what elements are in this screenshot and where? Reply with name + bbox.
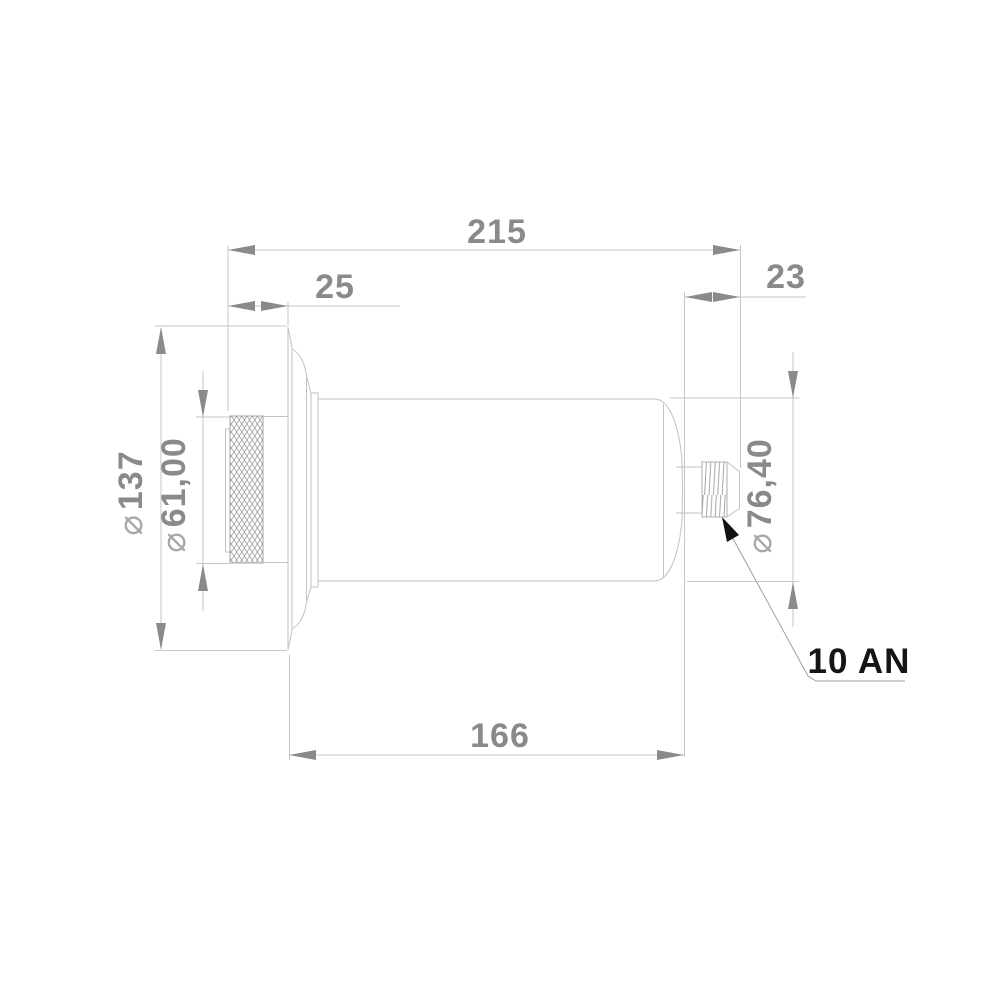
diameter-symbol: ⌀ bbox=[112, 514, 150, 535]
shoulder-bottom bbox=[292, 587, 311, 629]
dim-overall-length-label: 215 bbox=[467, 213, 527, 251]
arrowhead bbox=[156, 327, 166, 354]
arrowhead bbox=[198, 564, 208, 591]
leader-arrowhead bbox=[722, 517, 739, 542]
flange bbox=[288, 327, 311, 650]
cap-rim bbox=[226, 429, 231, 552]
fitting-threads bbox=[702, 462, 727, 517]
dimension-cap-diameter: ⌀61,00 bbox=[155, 371, 229, 611]
dim-flange-diameter-label: ⌀137 bbox=[112, 450, 150, 535]
shoulder-top bbox=[292, 349, 311, 393]
technical-drawing: 215 25 23 166 ⌀137 ⌀ bbox=[0, 0, 1000, 1000]
diameter-symbol: ⌀ bbox=[155, 531, 193, 552]
fitting-callout-label: 10 AN bbox=[808, 642, 911, 681]
dim-fitting-protrusion-label: 23 bbox=[766, 258, 806, 296]
arrowhead bbox=[228, 245, 255, 255]
dimension-cap-protrusion: 25 bbox=[228, 268, 400, 325]
dim-body-diameter-label: ⌀76,40 bbox=[741, 438, 779, 554]
arrowhead bbox=[261, 301, 288, 311]
arrowhead bbox=[788, 582, 798, 609]
technical-drawing-canvas: 215 25 23 166 ⌀137 ⌀ bbox=[0, 0, 1000, 1000]
collar bbox=[311, 393, 318, 587]
an-fitting bbox=[676, 462, 740, 517]
arrowhead bbox=[228, 301, 255, 311]
arrowhead bbox=[156, 623, 166, 650]
arrowhead bbox=[198, 390, 208, 417]
flange-bottom-chamfer bbox=[288, 631, 292, 650]
dim-cap-diameter-label: ⌀61,00 bbox=[155, 437, 193, 553]
dim-body-length-label: 166 bbox=[470, 717, 530, 755]
cylinder-body bbox=[318, 399, 683, 581]
flange-top-chamfer bbox=[288, 328, 292, 348]
arrowhead bbox=[788, 371, 798, 398]
arrowhead bbox=[657, 750, 684, 760]
arrowhead bbox=[713, 245, 740, 255]
arrowhead bbox=[685, 292, 712, 302]
diameter-symbol: ⌀ bbox=[741, 532, 779, 553]
part-view bbox=[226, 327, 740, 650]
fitting-flare-cone bbox=[727, 462, 740, 517]
dim-cap-protrusion-label: 25 bbox=[315, 268, 355, 306]
knurl-texture bbox=[230, 416, 263, 563]
body-dome-end bbox=[655, 399, 683, 581]
arrowhead bbox=[289, 750, 316, 760]
dimension-body-length: 166 bbox=[289, 655, 684, 760]
dimension-body-diameter: ⌀76,40 bbox=[670, 352, 799, 627]
arrowhead bbox=[713, 292, 740, 302]
knurled-cap bbox=[230, 416, 288, 563]
